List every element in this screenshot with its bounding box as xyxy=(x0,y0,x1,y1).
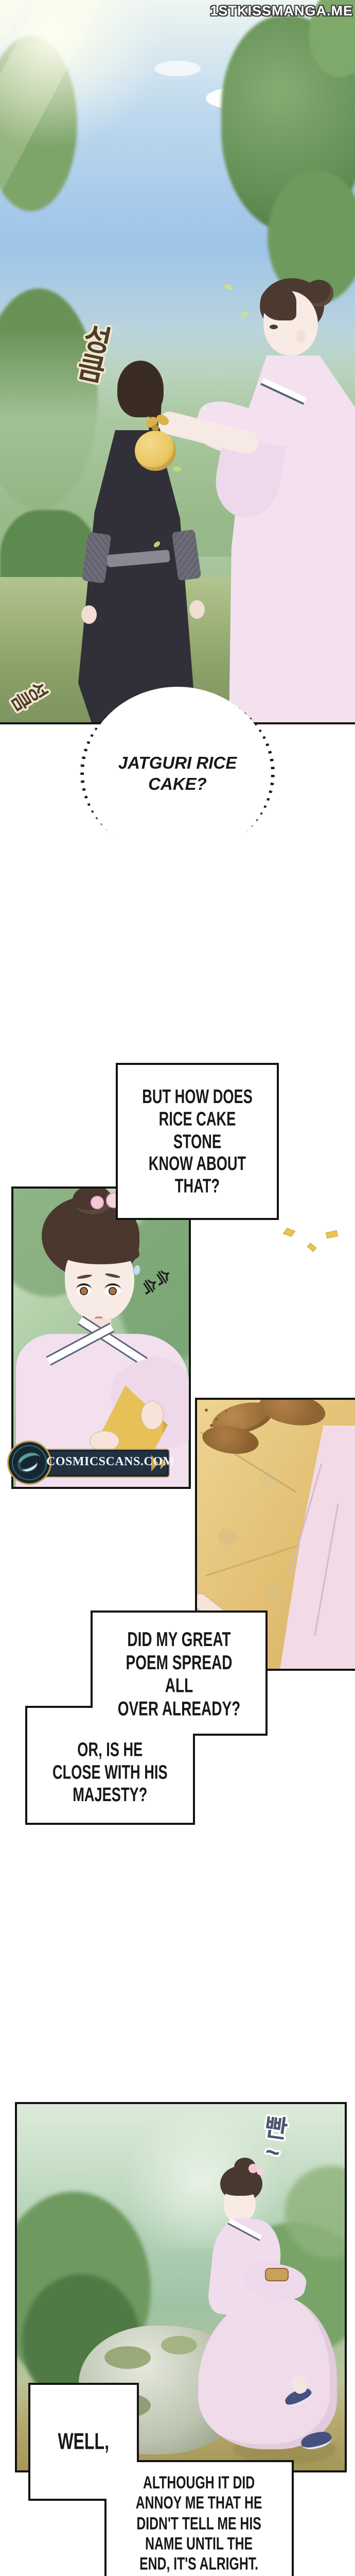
seated-hair-flower xyxy=(257,2168,264,2175)
boulder-moss xyxy=(104,2346,151,2369)
burst-text-wrap: JATGURI RICE CAKE? xyxy=(84,687,271,860)
man-fist xyxy=(81,605,97,624)
falling-leaf xyxy=(240,311,248,318)
dialog-box-close-majesty: OR, IS HE CLOSE WITH HIS MAJESTY? xyxy=(31,1728,189,1816)
dialog-text-poem-spread: DID MY GREAT POEM SPREAD ALL OVER ALREAD… xyxy=(113,1629,245,1721)
cloth-pattern-puppy xyxy=(264,1585,285,1603)
woman-ear xyxy=(296,330,305,343)
girl-eye xyxy=(76,1283,92,1296)
cloth-pattern-puppy xyxy=(218,1529,237,1545)
boulder-moss xyxy=(161,2336,197,2354)
burst-text: JATGURI RICE CAKE? xyxy=(118,752,237,795)
dialog-box-well: WELL, xyxy=(29,2406,138,2478)
webtoon-page: 성큼 1STKISSMANGA.ME 성큼 JATGURI RICE CAKE? xyxy=(0,0,355,2576)
dialog-text-but-how: BUT HOW DOES RICE CAKE STONE KNOW ABOUT … xyxy=(134,1086,261,1197)
gold-flake xyxy=(326,1230,338,1239)
cake-crumbs xyxy=(201,1405,232,1431)
scan-logo-circle xyxy=(7,1440,51,1485)
bundle-knot xyxy=(152,425,159,431)
girl-bangs xyxy=(62,1236,139,1264)
gold-flake xyxy=(283,1228,296,1237)
held-rice-cake xyxy=(265,2268,289,2281)
girl-iris xyxy=(109,1287,117,1295)
dialog-text-close-majesty: OR, IS HE CLOSE WITH HIS MAJESTY? xyxy=(52,1739,168,1806)
dialog-box-but-how: BUT HOW DOES RICE CAKE STONE KNOW ABOUT … xyxy=(116,1063,279,1220)
scan-watermark: COSMICSCANS.COM xyxy=(1,1440,179,1487)
rice-cake-bundle xyxy=(135,431,176,471)
gold-flake xyxy=(307,1243,317,1252)
speech-burst: JATGURI RICE CAKE? xyxy=(49,662,306,884)
watermark-top-site: 1STKISSMANGA.ME xyxy=(154,3,353,19)
girl-eye xyxy=(104,1283,121,1296)
dialog-box-although: ALTHOUGH IT DID ANNOY ME THAT HE DIDN'T … xyxy=(111,2470,288,2576)
man-fist xyxy=(189,600,205,619)
dialog-text-although: ALTHOUGH IT DID ANNOY ME THAT HE DIDN'T … xyxy=(136,2472,262,2574)
rice-cake xyxy=(257,1398,328,1430)
falling-leaf xyxy=(224,283,234,292)
dialog-box-poem-spread: DID MY GREAT POEM SPREAD ALL OVER ALREAD… xyxy=(97,1628,261,1721)
panel-forest-meeting: 성큼 xyxy=(0,0,355,724)
seated-bangs xyxy=(223,2181,258,2196)
sun-glow xyxy=(0,0,175,155)
girl-iris xyxy=(80,1287,88,1295)
woman-eye xyxy=(270,325,278,329)
dialog-text-well: WELL, xyxy=(58,2429,110,2455)
scan-site-text: COSMICSCANS.COM xyxy=(46,1455,154,1469)
hair-flower xyxy=(91,1196,104,1209)
girl-hand xyxy=(141,1401,164,1430)
